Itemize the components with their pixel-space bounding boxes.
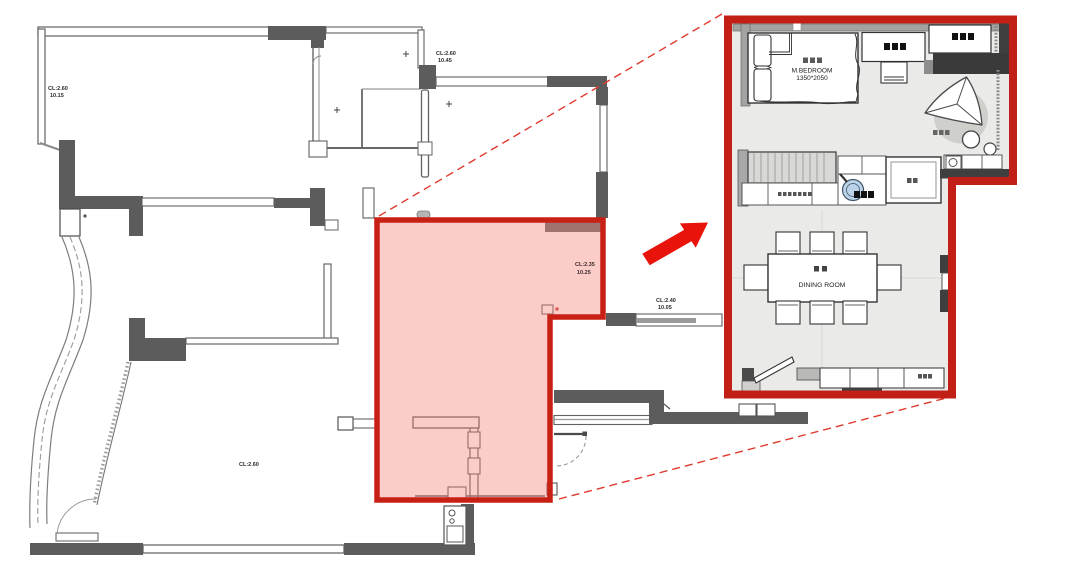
svg-text:10.25: 10.25	[577, 270, 591, 276]
svg-text:M.BEDROOM: M.BEDROOM	[792, 68, 833, 75]
svg-text:10.05: 10.05	[658, 305, 672, 311]
svg-text:CL:2.60: CL:2.60	[48, 86, 68, 92]
svg-text:CL:2.60: CL:2.60	[239, 462, 259, 468]
svg-text:10.15: 10.15	[50, 93, 64, 99]
svg-text:10.45: 10.45	[438, 58, 452, 64]
svg-text:CL:2.35: CL:2.35	[575, 262, 595, 268]
svg-text:DINING ROOM: DINING ROOM	[799, 282, 846, 289]
svg-text:CL:2.40: CL:2.40	[656, 298, 676, 304]
svg-text:1350*2050: 1350*2050	[796, 75, 828, 82]
svg-text:CL:2.60: CL:2.60	[436, 51, 456, 57]
